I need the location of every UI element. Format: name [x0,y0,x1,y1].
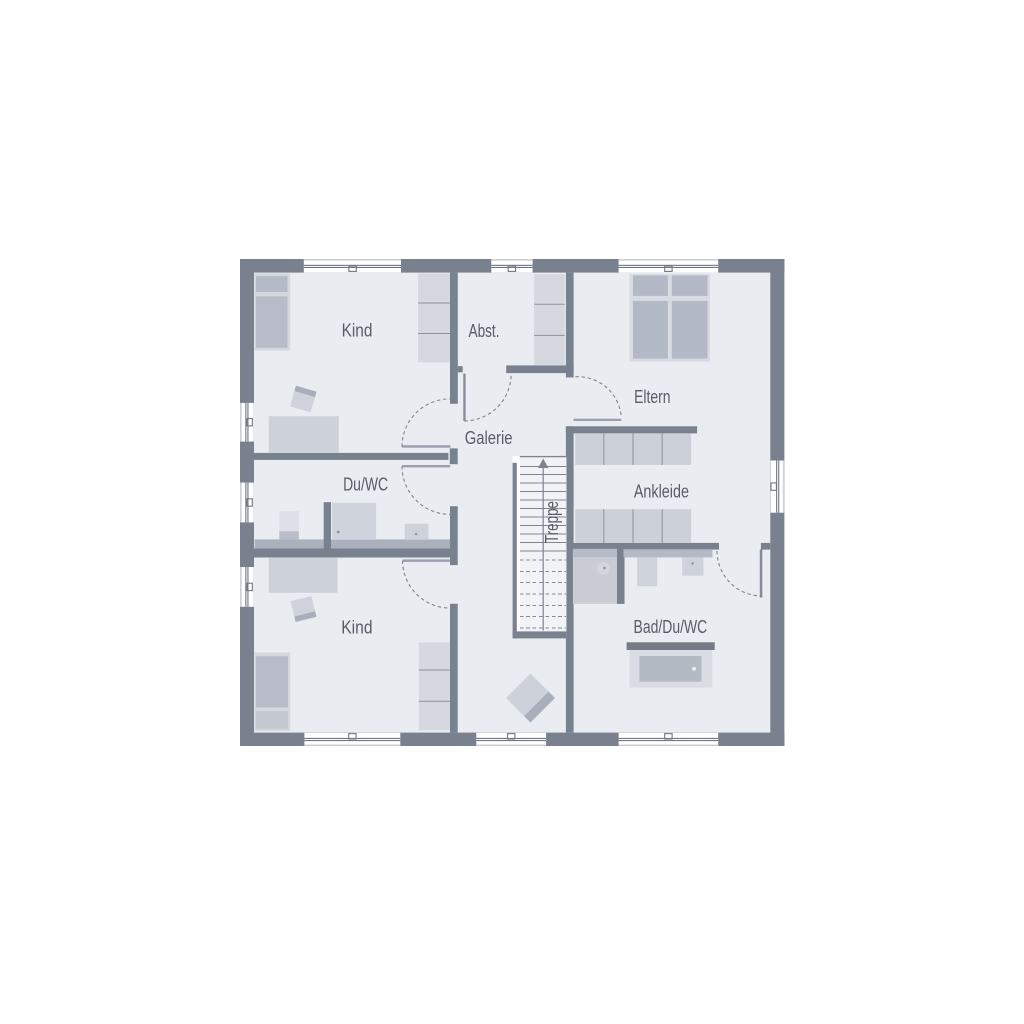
svg-text:Galerie: Galerie [465,428,513,448]
svg-text:Eltern: Eltern [634,387,670,407]
svg-text:Bad/Du/WC: Bad/Du/WC [634,617,708,637]
svg-text:Du/WC: Du/WC [343,475,388,495]
svg-text:Kind: Kind [342,321,373,341]
svg-text:Treppe: Treppe [542,501,562,543]
svg-text:Kind: Kind [341,618,372,638]
svg-text:Abst.: Abst. [469,321,500,341]
svg-text:Ankleide: Ankleide [634,482,689,502]
